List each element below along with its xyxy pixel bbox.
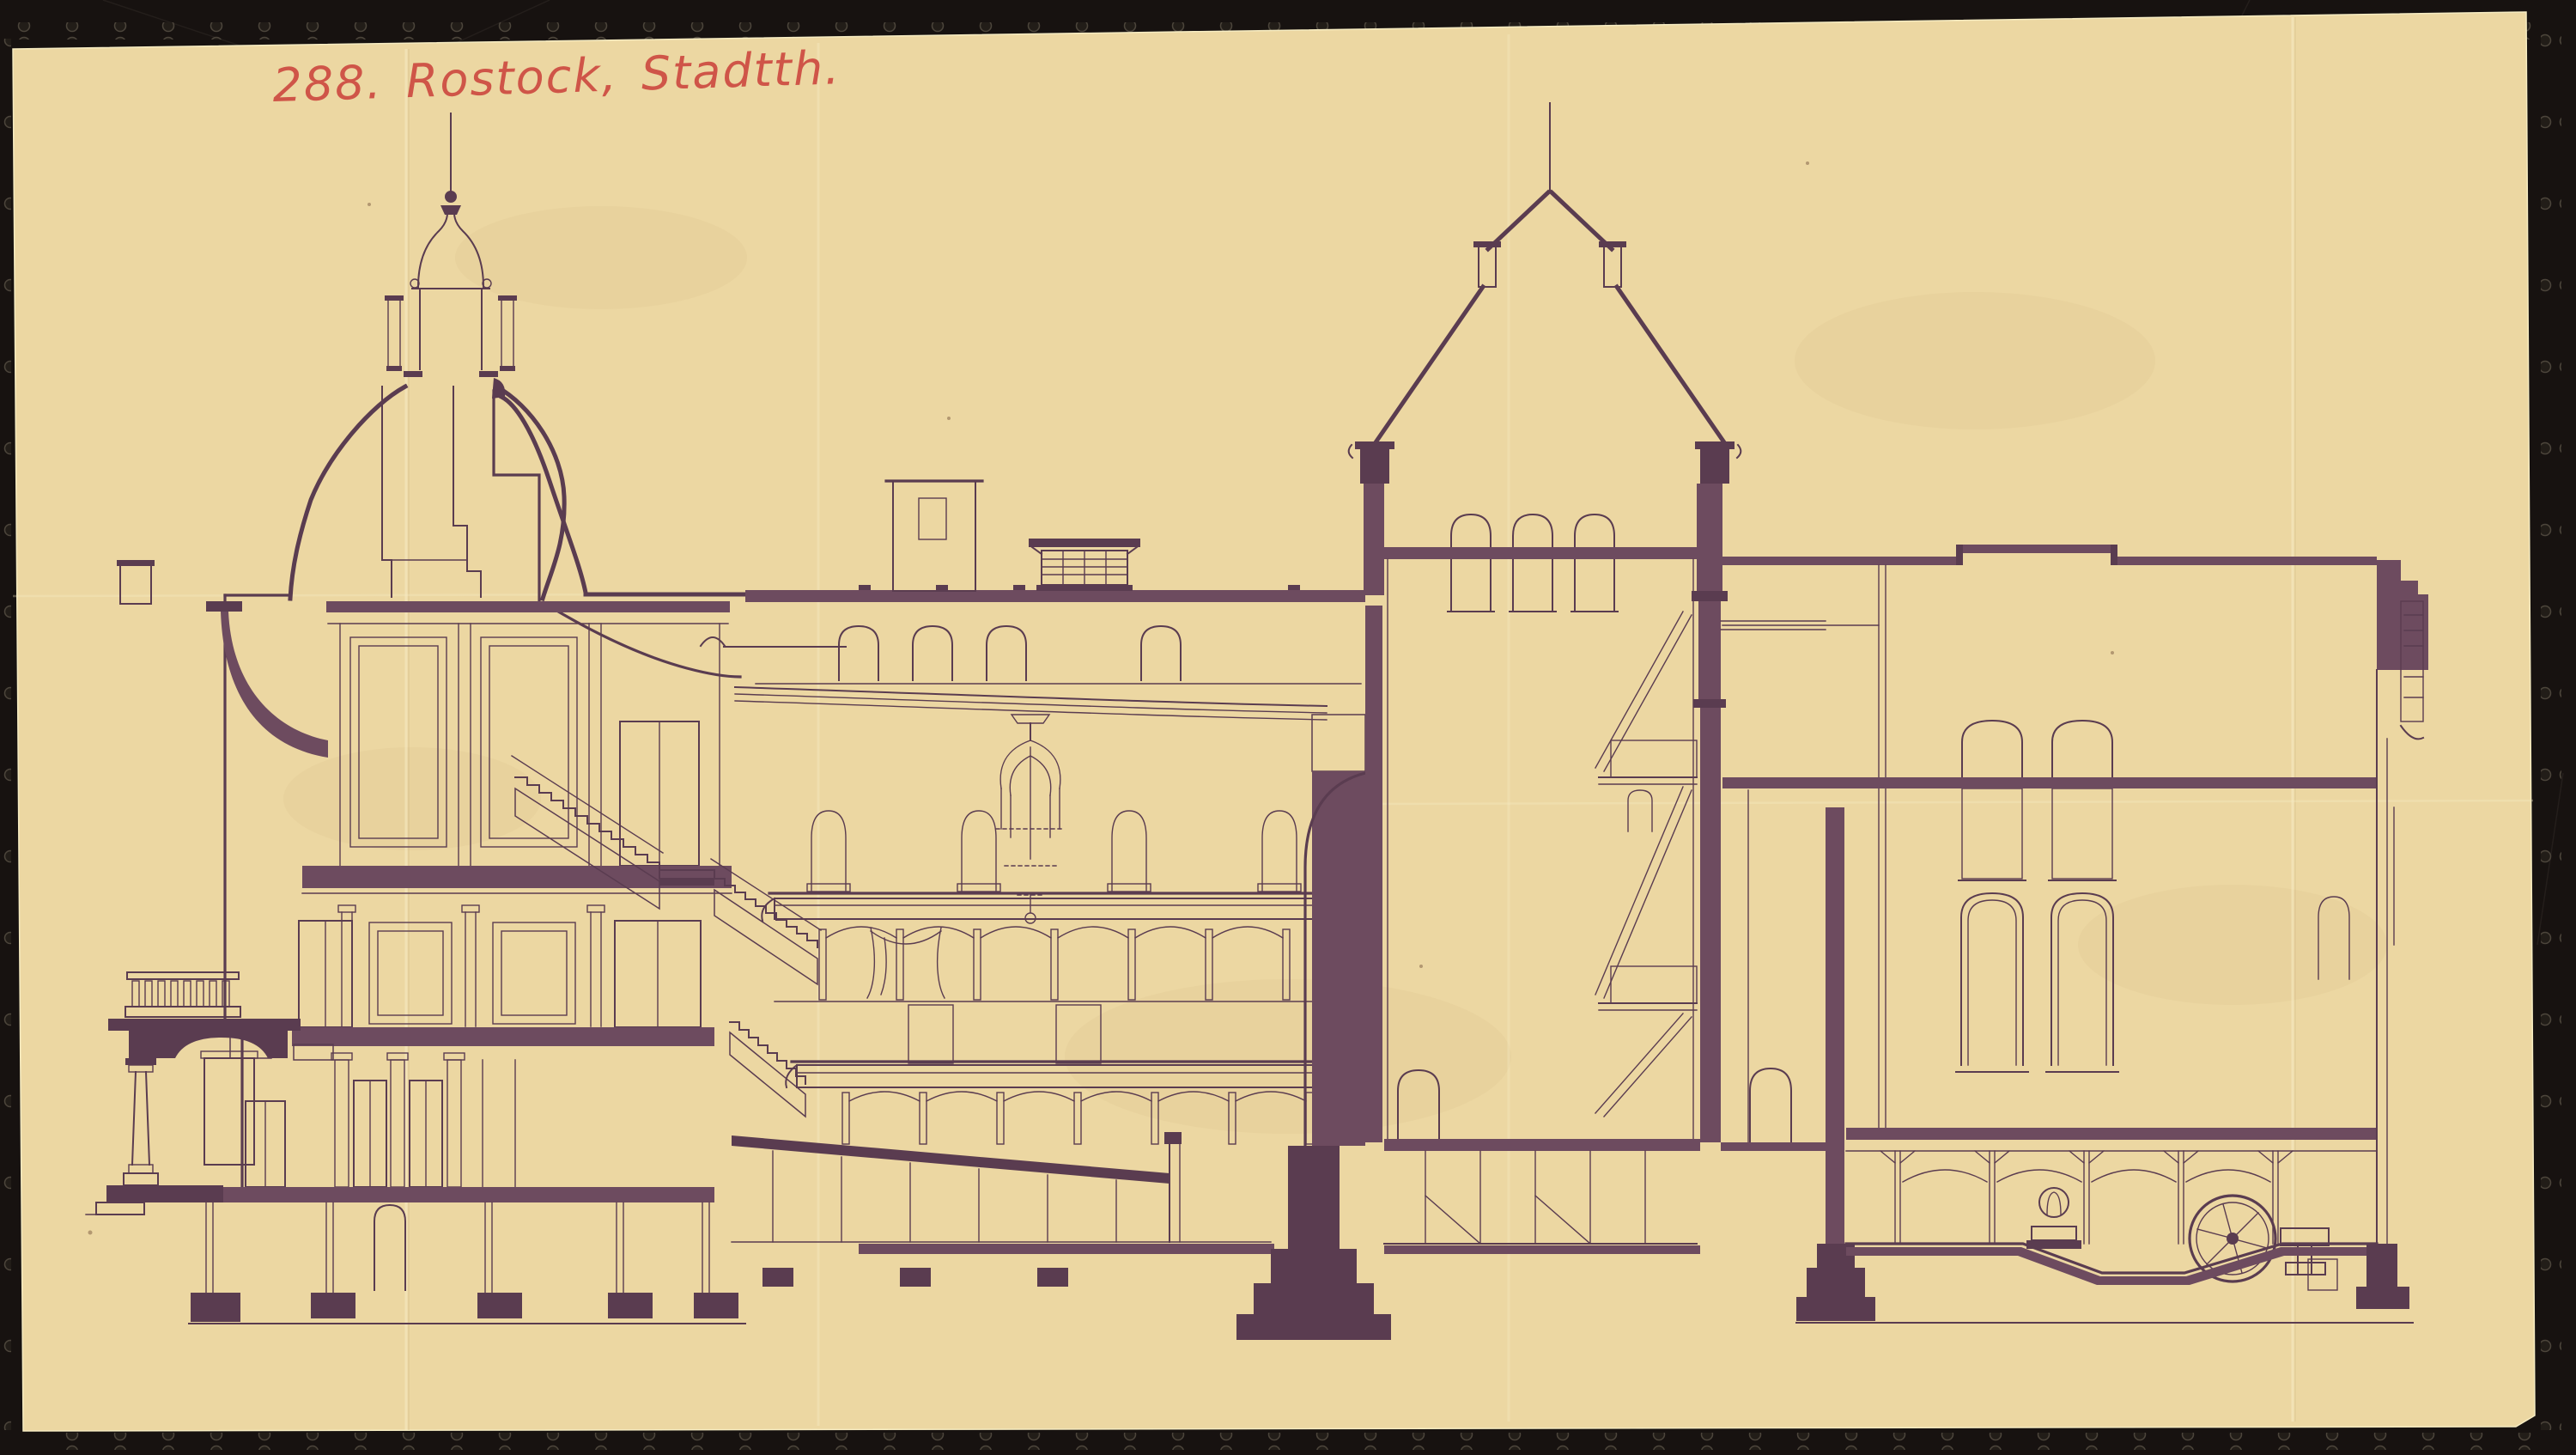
sprocket-holes-left (0, 39, 11, 1430)
roof-parapet-step (1956, 545, 2117, 553)
hatched-lintel-2 (294, 1044, 333, 1060)
paper-sheet (13, 12, 2535, 1431)
sprocket-holes-right (2541, 17, 2561, 1430)
cupola-cap (1029, 539, 1140, 547)
scanned-drawing-page: 288. Rostock, Stadtth. (0, 0, 2576, 1455)
proscenium-hatched-spandrel (1312, 715, 1365, 771)
ground-floor-slab (196, 1187, 714, 1202)
proscenium-poche (1312, 771, 1365, 1146)
machine-room-ceiling (1846, 1128, 2377, 1140)
auditorium-roof-slab (745, 590, 1365, 602)
stage-floor (1384, 1139, 1700, 1151)
drawing-canvas: 288. Rostock, Stadtth. (0, 0, 2576, 1455)
fly-tower-left-wall (1365, 606, 1382, 1142)
portico-floor-slab (106, 1185, 223, 1202)
rear-stage-wall (1826, 807, 1844, 1244)
rear-stage-footing (1796, 1297, 1875, 1321)
facade-footing (2356, 1287, 2409, 1309)
gridiron-band (1384, 547, 1697, 559)
proscenium-footing (1236, 1314, 1391, 1340)
ground-ceiling-slab (292, 1027, 714, 1046)
spire-ball-finial (445, 191, 457, 203)
sprocket-holes-bottom (34, 1433, 2542, 1450)
fly-tower-right-wall (1697, 484, 1722, 595)
upper-floor-slab (1722, 777, 2377, 788)
